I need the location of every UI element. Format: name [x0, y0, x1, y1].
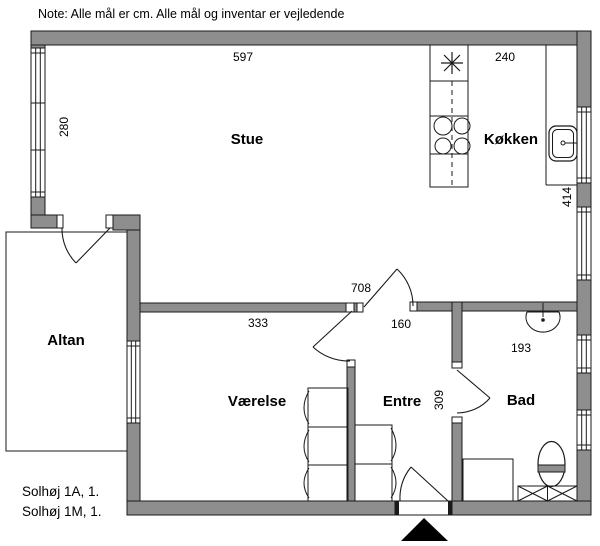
window-stue-left [31, 48, 45, 197]
floor-plan: Note: Alle mål er cm. Alle mål og invent… [0, 0, 600, 546]
entrance-door-jamb-left [395, 501, 399, 515]
wall-stue-altan-left [31, 215, 58, 228]
entrance-arrow-icon [401, 518, 448, 541]
entrance-door-jamb-right [448, 501, 452, 515]
room-label-stue: Stue [231, 131, 264, 148]
kitchen-star-icon [441, 52, 463, 74]
balcony-door [62, 228, 110, 263]
floor-grate-icon [518, 486, 577, 501]
entrance-door [400, 467, 448, 501]
dim-280: 280 [57, 117, 71, 137]
wall-entre-bad-lower [452, 417, 462, 501]
walls [31, 31, 591, 515]
vaerelse-wardrobe [304, 388, 348, 501]
window-kokken-right-1 [577, 107, 591, 183]
room-label-vaerelse: Værelse [228, 393, 286, 410]
wall-stue-vaerelse [140, 303, 363, 312]
window-altan-vaerelse [127, 341, 140, 423]
window-bad-right-2 [577, 410, 591, 450]
wall-entre-bad-upper [452, 302, 462, 368]
kitchen-fixtures [430, 45, 577, 187]
entrance-door-opening [395, 501, 452, 515]
dim-597: 597 [233, 50, 253, 64]
dim-160: 160 [391, 317, 411, 331]
vaerelse-door-top-jamb [346, 303, 354, 312]
room-label-bad: Bad [507, 392, 535, 409]
shower-cabinet [463, 459, 513, 501]
dim-414: 414 [560, 187, 574, 207]
windows [31, 48, 591, 450]
vaerelse-door [313, 311, 352, 361]
dim-240: 240 [495, 50, 515, 64]
balcony-door-jamb-right [106, 215, 113, 228]
floor-plan-canvas: Note: Alle mål er cm. Alle mål og invent… [0, 0, 600, 546]
toilet-icon [538, 442, 565, 487]
stue-door-left-jamb [357, 303, 363, 312]
entre-wardrobe [355, 425, 396, 501]
doors [62, 228, 490, 501]
footer-address-2: Solhøj 1M, 1. [22, 504, 102, 519]
note-text: Note: Alle mål er cm. Alle mål og invent… [38, 7, 344, 21]
window-bad-right-1 [577, 335, 591, 373]
stue-entre-door [364, 269, 413, 307]
window-kokken-right-2 [577, 207, 591, 280]
wall-top [31, 31, 591, 45]
dim-708: 708 [351, 281, 371, 295]
door-openings [57, 215, 462, 515]
room-label-kokken: Køkken [484, 131, 538, 148]
bad-door-bottom-jamb [452, 417, 462, 423]
kitchen-sink-icon [549, 126, 577, 161]
balcony-door-opening [57, 215, 113, 228]
wall-bottom [127, 501, 591, 515]
dim-333: 333 [248, 316, 268, 330]
kitchen-worktop-right [546, 45, 577, 185]
room-label-entre: Entre [383, 393, 421, 410]
wall-stue-altan-corner [113, 215, 140, 230]
footer-address-1: Solhøj 1A, 1. [22, 484, 99, 499]
dim-309: 309 [432, 390, 446, 410]
balcony-door-jamb-left [57, 215, 63, 228]
room-label-altan: Altan [47, 332, 85, 349]
wall-stue-bad [410, 302, 577, 311]
dim-193: 193 [511, 341, 531, 355]
bad-door [457, 370, 490, 413]
bad-door-top-jamb [452, 362, 462, 368]
